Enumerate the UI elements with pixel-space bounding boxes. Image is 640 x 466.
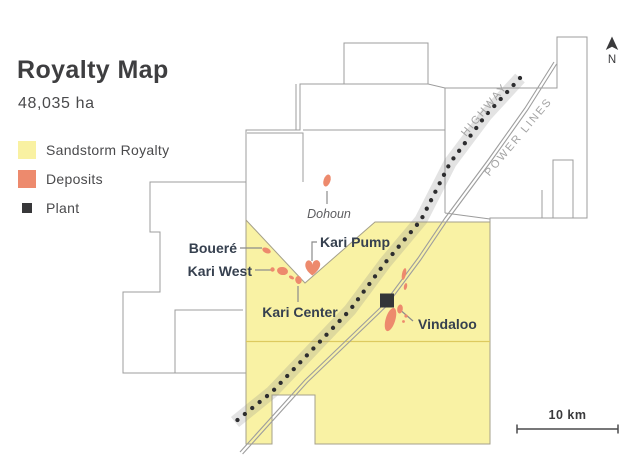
royalty-swatch xyxy=(18,141,36,159)
plant-marker xyxy=(380,294,394,308)
deposit-kari-west-dot xyxy=(270,267,274,271)
bouere-label: Boueré xyxy=(189,240,237,256)
deposit-vindaloo-dot-1 xyxy=(404,314,407,317)
legend-label-deposits: Deposits xyxy=(46,171,103,187)
deposit-swatch xyxy=(18,170,36,188)
kari-center-label: Kari Center xyxy=(262,304,338,320)
scale-bar: 10 km xyxy=(517,408,618,434)
legend-item-plant: Plant xyxy=(18,199,169,217)
vindaloo-label: Vindaloo xyxy=(418,316,477,332)
area-subtitle: 48,035 ha xyxy=(18,95,95,113)
north-label: N xyxy=(608,54,616,66)
legend-item-royalty: Sandstorm Royalty xyxy=(18,141,169,159)
kari-pump-label: Kari Pump xyxy=(320,234,390,250)
legend-item-deposits: Deposits xyxy=(18,170,169,188)
legend-label-royalty: Sandstorm Royalty xyxy=(46,142,169,158)
legend: Sandstorm Royalty Deposits Plant xyxy=(18,141,169,228)
north-arrow-icon xyxy=(606,37,618,51)
legend-label-plant: Plant xyxy=(46,200,79,216)
deposit-vindaloo-dot-2 xyxy=(402,320,405,323)
plant-swatch xyxy=(18,199,36,217)
dohoun-label: Dohoun xyxy=(307,207,351,221)
scale-label: 10 km xyxy=(549,408,587,422)
page-title: Royalty Map xyxy=(17,56,169,85)
kari-west-label: Kari West xyxy=(188,263,253,279)
